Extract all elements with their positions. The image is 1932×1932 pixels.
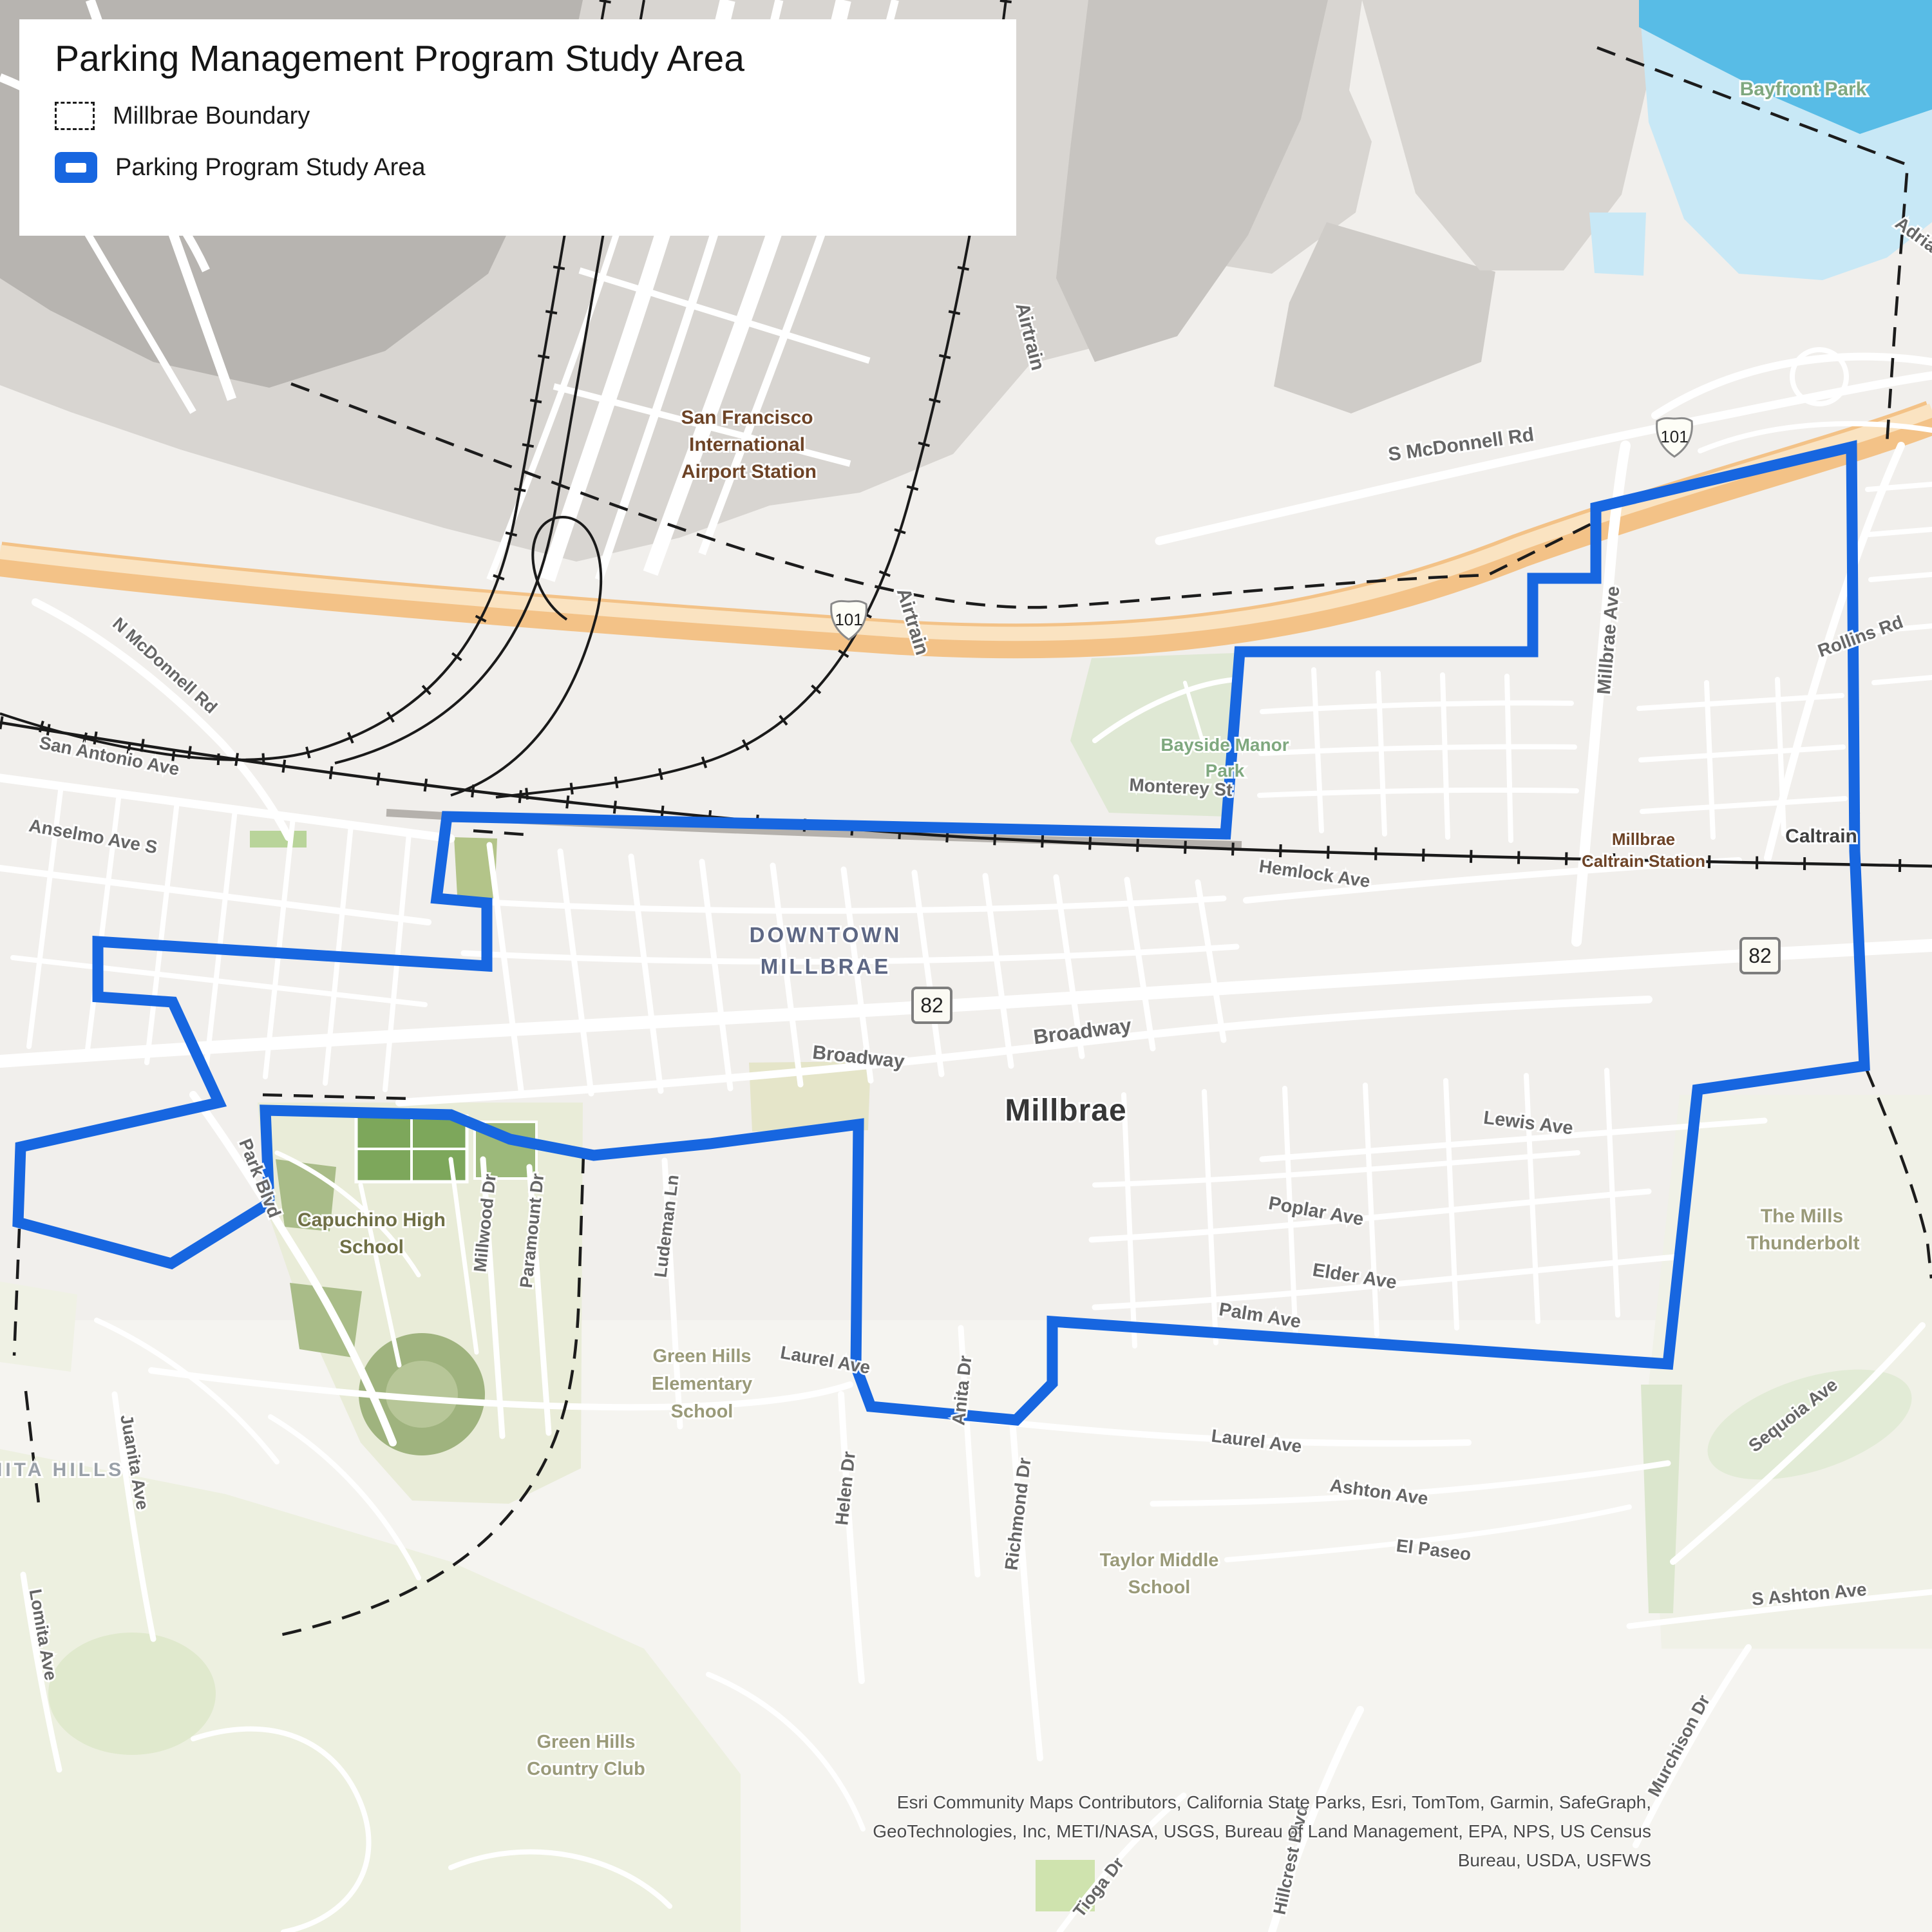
lbl-millbrae-city: Millbrae — [1005, 1094, 1126, 1128]
lbl-sfo-3: Airport Station — [681, 461, 817, 482]
ca-82-shield-1: 82 — [913, 988, 951, 1023]
lbl-downtown-1: DOWNTOWN — [750, 923, 902, 947]
ca-82-shield-1-text: 82 — [920, 994, 943, 1017]
us-101-shield-2-text: 101 — [835, 610, 862, 629]
lbl-bayside-1: Bayside Manor — [1160, 735, 1289, 755]
lbl-caltrain: Caltrain — [1785, 826, 1857, 847]
legend-card: Parking Management Program Study Area Mi… — [19, 19, 1016, 236]
lbl-taylor-1: Taylor Middle — [1100, 1550, 1219, 1571]
lbl-ghe-3: School — [671, 1401, 734, 1422]
lbl-capuchino-2: School — [339, 1236, 404, 1258]
map-export: 1011018282 San FranciscoInternationalAir… — [0, 0, 1932, 1932]
lbl-capuchino-1: Capuchino High — [298, 1209, 446, 1231]
blue-area-icon — [55, 152, 97, 183]
ca-82-shield-2: 82 — [1741, 938, 1779, 973]
lbl-ghe-2: Elementary — [652, 1374, 752, 1394]
map-canvas[interactable]: 1011018282 San FranciscoInternationalAir… — [0, 0, 1932, 1932]
attribution-line: Esri Community Maps Contributors, Califo… — [873, 1788, 1651, 1817]
lbl-mills-2: Thunderbolt — [1747, 1233, 1860, 1254]
legend-item-millbrae-boundary: Millbrae Boundary — [55, 102, 1016, 130]
lbl-downtown-2: MILLBRAE — [761, 954, 891, 978]
map-attribution: Esri Community Maps Contributors, Califo… — [873, 1788, 1651, 1875]
page-title: Parking Management Program Study Area — [55, 37, 1016, 80]
lbl-sfo-2: International — [689, 434, 805, 455]
lbl-ghcc-2: Country Club — [527, 1759, 645, 1779]
attribution-line: GeoTechnologies, Inc, METI/NASA, USGS, B… — [873, 1817, 1651, 1846]
legend-item-study-area: Parking Program Study Area — [55, 152, 1016, 183]
dashed-boundary-icon — [55, 102, 95, 130]
lbl-taylor-2: School — [1128, 1577, 1191, 1598]
lbl-mills-1: The Mills — [1761, 1206, 1843, 1227]
legend-label: Parking Program Study Area — [115, 154, 426, 182]
ca-82-shield-2-text: 82 — [1748, 944, 1772, 967]
lbl-lomita-hills: LOMITA HILLS — [0, 1459, 124, 1481]
lbl-bayfront: Bayfront Park — [1740, 79, 1867, 100]
lbl-bayside-2: Park — [1206, 761, 1245, 781]
legend-label: Millbrae Boundary — [113, 102, 310, 130]
us-101-shield-1-text: 101 — [1660, 427, 1688, 446]
lbl-ghe-1: Green Hills — [652, 1346, 751, 1367]
lbl-sfo-1: San Francisco — [681, 407, 813, 428]
lbl-ghcc-1: Green Hills — [536, 1732, 635, 1752]
attribution-line: Bureau, USDA, USFWS — [873, 1846, 1651, 1875]
lbl-millbrae-sta-1: Millbrae — [1612, 829, 1675, 849]
lbl-millbrae-sta-2: Caltrain Station — [1582, 851, 1705, 871]
